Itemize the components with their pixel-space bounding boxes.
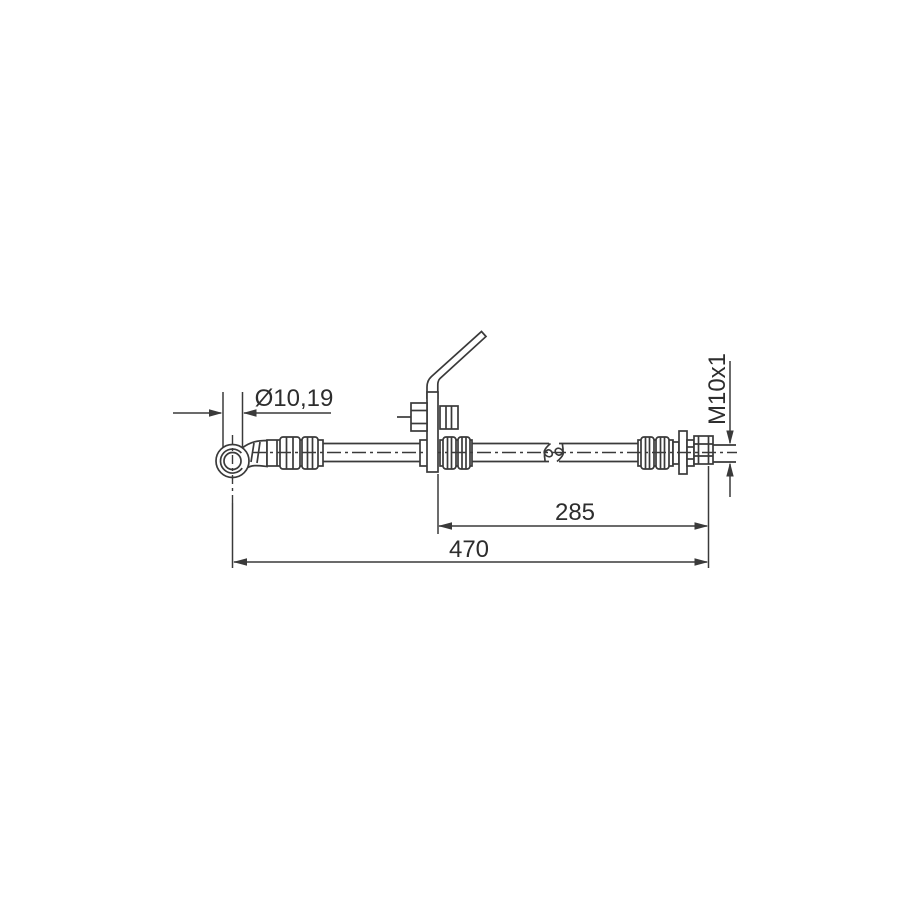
threaded-pipe [713,445,736,462]
label-thread-size: M10x1 [704,353,731,425]
label-dim-470: 470 [449,536,489,563]
label-dim-285: 285 [555,499,595,526]
label-eye-diameter: Ø10,19 [255,385,334,412]
bracket-bolt-nut [397,403,458,431]
bracket-tab [427,332,486,399]
bracket-plate [427,392,438,472]
product-drawing-canvas: Ø10,19 M10x1 285 470 [0,0,915,915]
brake-hose-technical-drawing: Ø10,19 M10x1 285 470 [0,0,915,915]
